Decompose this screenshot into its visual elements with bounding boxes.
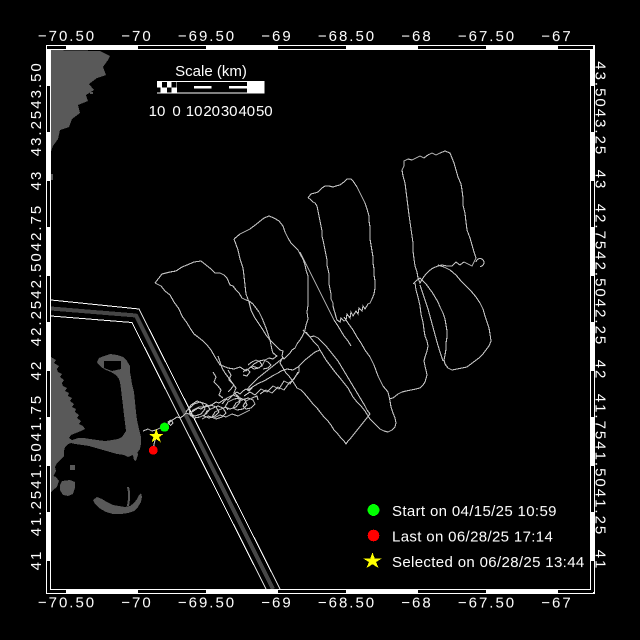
svg-text:−70.50: −70.50 bbox=[38, 28, 96, 45]
svg-text:43.25: 43.25 bbox=[591, 109, 608, 157]
svg-text:42.75: 42.75 bbox=[591, 204, 608, 252]
svg-text:41.50: 41.50 bbox=[28, 441, 45, 489]
svg-text:−68.50: −68.50 bbox=[318, 594, 376, 611]
svg-text:10: 10 bbox=[149, 103, 166, 120]
svg-text:42.25: 42.25 bbox=[28, 299, 45, 347]
svg-text:43.50: 43.50 bbox=[591, 61, 608, 109]
svg-text:41.50: 41.50 bbox=[591, 441, 608, 489]
svg-text:Start on 04/15/25 10:59: Start on 04/15/25 10:59 bbox=[392, 503, 557, 520]
svg-text:−69.50: −69.50 bbox=[178, 594, 236, 611]
svg-text:−69: −69 bbox=[261, 594, 292, 611]
svg-text:41.75: 41.75 bbox=[591, 394, 608, 442]
svg-text:−67.50: −67.50 bbox=[458, 28, 516, 45]
svg-text:−67: −67 bbox=[541, 595, 572, 612]
svg-text:42: 42 bbox=[28, 360, 45, 381]
svg-text:−69.50: −69.50 bbox=[178, 28, 236, 45]
svg-text:Last on 06/28/25 17:14: Last on 06/28/25 17:14 bbox=[392, 529, 553, 546]
svg-text:Scale (km): Scale (km) bbox=[175, 63, 247, 80]
svg-text:−70: −70 bbox=[121, 28, 152, 45]
svg-text:42.75: 42.75 bbox=[28, 204, 45, 252]
svg-text:−68: −68 bbox=[401, 595, 432, 612]
svg-text:−68.50: −68.50 bbox=[318, 28, 376, 45]
svg-text:42.50: 42.50 bbox=[591, 251, 608, 299]
svg-text:10: 10 bbox=[186, 103, 203, 120]
svg-text:40: 40 bbox=[238, 103, 255, 120]
svg-text:42: 42 bbox=[591, 360, 608, 381]
svg-text:−69: −69 bbox=[261, 28, 292, 45]
svg-text:20: 20 bbox=[203, 103, 220, 120]
svg-text:41.75: 41.75 bbox=[28, 394, 45, 442]
svg-text:0: 0 bbox=[172, 103, 180, 120]
svg-text:30: 30 bbox=[221, 103, 238, 120]
svg-text:43: 43 bbox=[591, 170, 608, 191]
svg-text:42.50: 42.50 bbox=[28, 251, 45, 299]
svg-text:43.50: 43.50 bbox=[28, 61, 45, 109]
svg-text:43: 43 bbox=[28, 170, 45, 191]
svg-text:−67: −67 bbox=[541, 28, 572, 45]
svg-text:41.25: 41.25 bbox=[591, 489, 608, 537]
svg-text:−70.50: −70.50 bbox=[38, 594, 96, 611]
svg-text:41.25: 41.25 bbox=[28, 489, 45, 537]
svg-text:−68: −68 bbox=[401, 28, 432, 45]
svg-text:41: 41 bbox=[28, 550, 45, 571]
svg-text:Selected on 06/28/25 13:44: Selected on 06/28/25 13:44 bbox=[392, 554, 585, 571]
svg-text:50: 50 bbox=[256, 103, 273, 120]
svg-text:−70: −70 bbox=[121, 594, 152, 611]
svg-text:41: 41 bbox=[591, 550, 608, 571]
svg-text:42.25: 42.25 bbox=[591, 299, 608, 347]
svg-text:43.25: 43.25 bbox=[28, 109, 45, 157]
svg-text:−67.50: −67.50 bbox=[458, 595, 516, 612]
